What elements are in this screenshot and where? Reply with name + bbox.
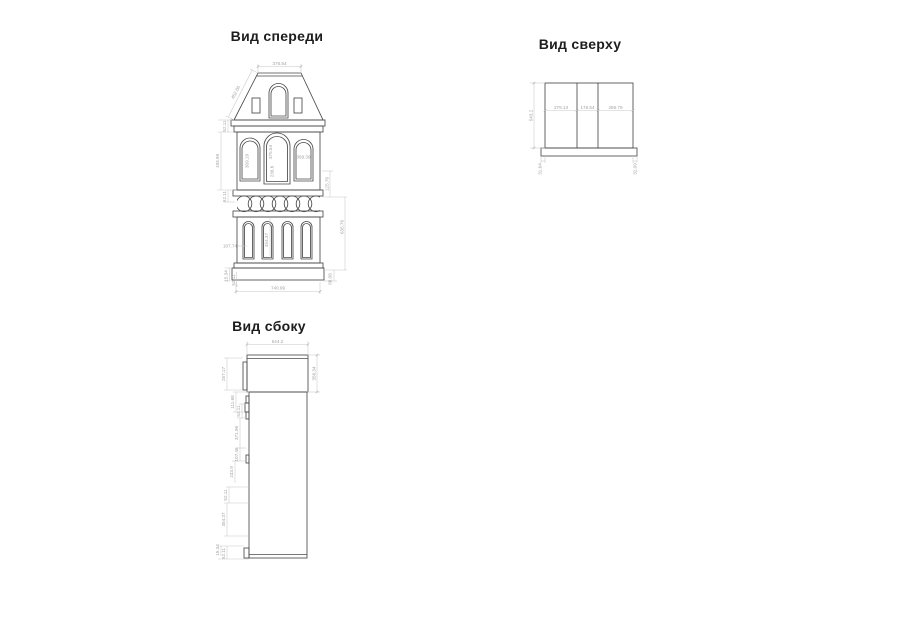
svg-text:286.79: 286.79 [608, 105, 622, 110]
svg-text:371.96: 371.96 [234, 426, 239, 440]
window-right-inner [296, 143, 311, 179]
drawing-canvas: Вид спереди [0, 0, 900, 636]
svg-text:635.76: 635.76 [339, 220, 344, 234]
svg-text:543.2: 543.2 [528, 109, 533, 121]
roof-arch-window-inner [271, 87, 286, 117]
svg-text:257.17: 257.17 [221, 367, 226, 381]
dim-front-right-base: 88.08 [324, 270, 337, 285]
band-lower [233, 211, 323, 217]
dim-side-ladder-5: 107.48 [234, 447, 240, 461]
base-plinth [232, 268, 324, 280]
dim-top-depth: 543.2 [528, 82, 545, 149]
svg-text:32.09: 32.09 [633, 163, 638, 175]
svg-text:52.11: 52.11 [222, 190, 227, 202]
lower-arch-1-inner [245, 224, 253, 258]
dim-side-ladder-8: 454.37 [221, 503, 227, 536]
top-view-front-band [541, 148, 637, 156]
svg-text:740.99: 740.99 [271, 286, 285, 291]
svg-text:52.11: 52.11 [222, 120, 227, 132]
dim-front-right-lower: 635.76 [324, 197, 347, 270]
top-view-title: Вид сверху [539, 36, 622, 52]
cornice-band-2 [234, 126, 323, 132]
dim-front-roof-slope: 452.66 [226, 69, 258, 120]
front-view-dimensions: 376.54 452.66 52.11 193.99 [215, 61, 347, 294]
side-view-geometry [243, 355, 308, 558]
svg-text:279.13: 279.13 [554, 105, 568, 110]
side-view: Вид сбоку 544.2 [215, 318, 320, 559]
band-upper [233, 190, 323, 196]
svg-text:15.34: 15.34 [224, 270, 229, 282]
front-view: Вид спереди [215, 28, 347, 294]
svg-text:544.2: 544.2 [272, 339, 284, 344]
front-view-title: Вид спереди [231, 28, 324, 44]
base-band [234, 263, 323, 268]
svg-text:31.64: 31.64 [538, 163, 543, 175]
dim-top-panels: 279.13 176.54 286.79 [544, 105, 634, 112]
dim-window-mid-height-label: 375.54 [268, 145, 273, 159]
dim-window-left-label: 309.19 [245, 154, 250, 168]
dim-front-bottom-width: 740.99 [235, 282, 321, 294]
svg-text:52.11: 52.11 [236, 405, 241, 417]
svg-text:107.48: 107.48 [234, 447, 239, 461]
side-band-profile [246, 412, 249, 419]
svg-text:452.66: 452.66 [230, 85, 241, 100]
roof-small-window-left [252, 98, 260, 113]
dim-top-overhang-right: 32.09 [633, 156, 638, 175]
dim-front-top-width: 376.54 [257, 61, 302, 72]
side-roof-molding [243, 362, 247, 390]
dim-side-ladder-10: 52.11 [221, 546, 227, 559]
svg-text:111.68: 111.68 [230, 395, 235, 409]
svg-text:125.76: 125.76 [324, 177, 329, 191]
dim-side-top-width: 544.2 [246, 339, 309, 355]
svg-text:376.54: 376.54 [272, 61, 286, 66]
top-view: Вид сверху 543.2 279.13 176.5 [528, 36, 637, 175]
roof-small-window-right [294, 98, 302, 113]
cornice-band [231, 120, 325, 126]
svg-text:52.11: 52.11 [223, 489, 228, 501]
dim-top-overhang-left: 31.64 [538, 156, 546, 175]
dim-side-ladder-1: 257.17 [221, 358, 227, 390]
svg-text:176.54: 176.54 [580, 105, 594, 110]
scallop-row [236, 196, 324, 212]
svg-text:107.74: 107.74 [223, 244, 237, 249]
svg-text:193.99: 193.99 [215, 154, 220, 168]
lower-arch-3-inner [284, 224, 292, 258]
side-cornice-profile-2 [245, 403, 249, 412]
svg-text:356.34: 356.34 [311, 366, 316, 380]
lower-arch-4-inner [303, 224, 311, 258]
dim-window-right-label: 369.39 [296, 155, 310, 160]
svg-text:52.11: 52.11 [221, 547, 226, 559]
dim-front-left-body: 193.99 [215, 132, 237, 190]
svg-text:233.9: 233.9 [229, 466, 234, 478]
top-view-body [545, 83, 633, 148]
side-body [249, 392, 307, 558]
svg-text:454.37: 454.37 [221, 512, 226, 526]
top-view-geometry [541, 83, 637, 156]
svg-text:88.08: 88.08 [328, 273, 333, 285]
dim-side-ladder-6: 233.9 [229, 461, 235, 483]
side-foot-profile [244, 548, 249, 558]
dim-side-ladder-7: 52.11 [223, 487, 229, 503]
svg-text:454.37: 454.37 [264, 233, 269, 247]
dim-side-ladder-3: 52.11 [236, 404, 242, 418]
dim-window-mid-width-label: 236.6 [270, 165, 275, 177]
dim-front-right-band: 125.76 [322, 171, 347, 197]
dim-side-right-height: 356.34 [307, 354, 320, 393]
front-view-geometry [231, 73, 325, 280]
side-roof-block [247, 355, 308, 392]
side-mid-profile [246, 455, 249, 463]
roof-arch-window [269, 84, 288, 119]
side-view-title: Вид сбоку [232, 318, 306, 334]
dim-side-ladder-4: 371.96 [234, 418, 240, 448]
svg-text:52.11: 52.11 [231, 274, 236, 286]
side-cornice-profile-1 [246, 396, 249, 403]
svg-text:15.34: 15.34 [215, 544, 220, 556]
side-view-dimensions: 544.2 356.34 [215, 339, 320, 559]
